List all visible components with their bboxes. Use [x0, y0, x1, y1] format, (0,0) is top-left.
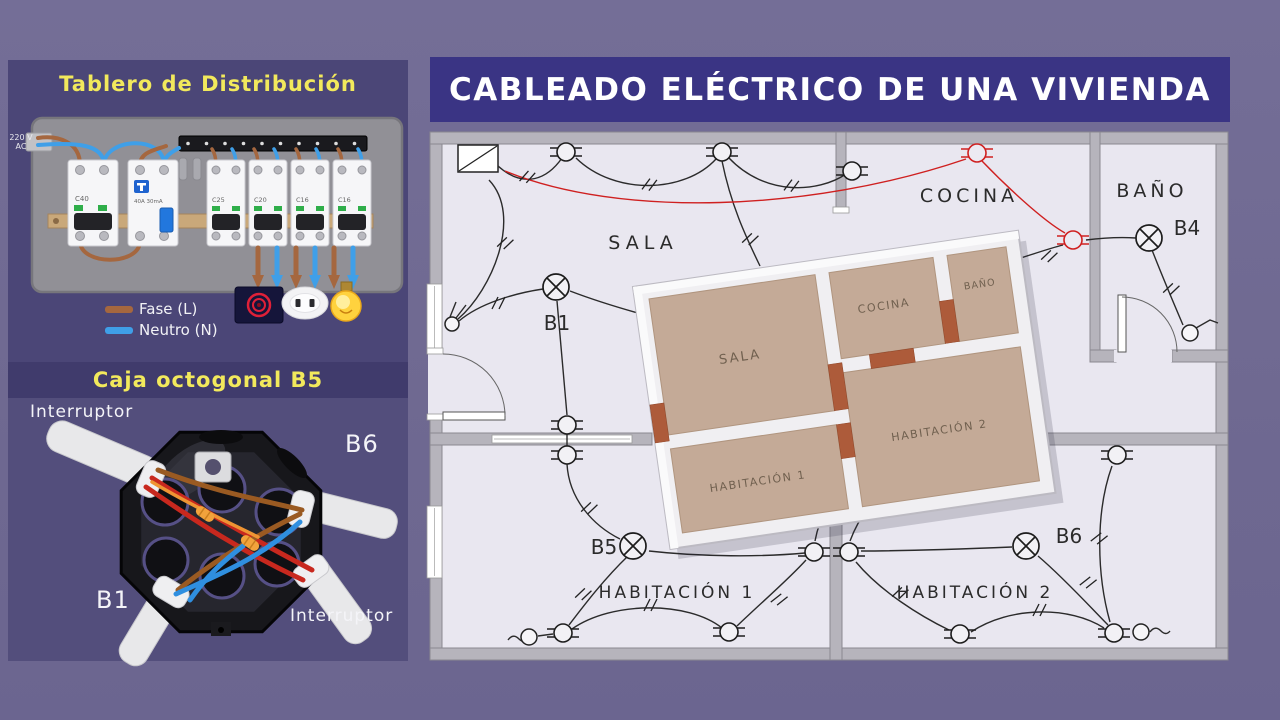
lamp-label-b5: B5 — [591, 535, 617, 559]
lamp-icon-b6 — [1013, 533, 1039, 559]
cable-clamp — [195, 452, 231, 482]
tablero-title: Tablero de Distribución — [8, 72, 408, 96]
switch-icon — [1133, 624, 1149, 640]
room-label-hab1: HABITACIÓN 1 — [599, 581, 756, 603]
floor-plan: SALA COCINA BAÑO HABITACIÓN 1 HABITACIÓN… — [427, 132, 1228, 660]
mcb-label: C20 — [254, 196, 267, 204]
rcd-breaker: 40A 30mA — [128, 160, 178, 246]
mcb-c25: C25 — [207, 160, 245, 246]
switch-icon — [1182, 325, 1198, 341]
mcb-label: C16 — [338, 196, 351, 204]
lamp-icon-b1 — [543, 274, 569, 300]
mcb-c16-b: C16 — [333, 160, 371, 246]
breaker-toggle — [74, 213, 112, 230]
main-breaker: C40 — [68, 160, 118, 246]
neutro-color-swatch — [105, 327, 133, 334]
outlet-icon — [282, 287, 328, 319]
fase-legend-label: Fase (L) — [139, 300, 197, 318]
lamp-icon-b4 — [1136, 225, 1162, 251]
switch-icon — [445, 317, 459, 331]
supply-voltage-label: 220 V AC — [4, 133, 38, 151]
title-banner: CABLEADO ELÉCTRICO DE UNA VIVIENDA — [430, 57, 1230, 122]
caja-label-b6: B6 — [345, 430, 379, 458]
crimp-connector — [179, 158, 187, 180]
fase-color-swatch — [105, 306, 133, 313]
caja-label-interruptor-br: Interruptor — [290, 606, 393, 626]
crimp-connector — [193, 158, 201, 180]
room-label-bano: BAÑO — [1116, 179, 1187, 202]
distribution-board-illustration: C40 40A 30mA C25 — [26, 118, 402, 323]
mcb-c16-a: C16 — [291, 160, 329, 246]
room-label-hab2: HABITACIÓN 2 — [897, 581, 1054, 603]
model-floor-bano — [947, 247, 1018, 342]
switch-icon — [521, 629, 537, 645]
lamp-label-b4: B4 — [1174, 216, 1200, 240]
page-title: CABLEADO ELÉCTRICO DE UNA VIVIENDA — [449, 72, 1211, 108]
caja-label-interruptor-tl: Interruptor — [30, 402, 133, 422]
board-symbol — [458, 145, 498, 172]
lamp-icon-b5 — [620, 533, 646, 559]
stove-icon — [235, 287, 283, 323]
main-breaker-label: C40 — [75, 195, 89, 203]
mcb-label: C16 — [296, 196, 309, 204]
mcb-label: C25 — [212, 196, 225, 204]
caja-label-b1: B1 — [96, 586, 130, 614]
rcd-logo-icon — [134, 180, 149, 193]
room-label-cocina: COCINA — [920, 185, 1018, 207]
rcd-rating-label: 40A 30mA — [134, 199, 163, 205]
lamp-label-b1: B1 — [544, 311, 570, 335]
lamp-label-b6: B6 — [1056, 524, 1082, 548]
room-label-sala: SALA — [608, 232, 677, 254]
rcd-toggle — [160, 208, 173, 232]
mcb-c20: C20 — [249, 160, 287, 246]
neutro-legend-label: Neutro (N) — [139, 321, 218, 339]
house-3d-model: SALA COCINA BAÑO HABITACIÓN 1 HABITACIÓN… — [633, 231, 1055, 549]
